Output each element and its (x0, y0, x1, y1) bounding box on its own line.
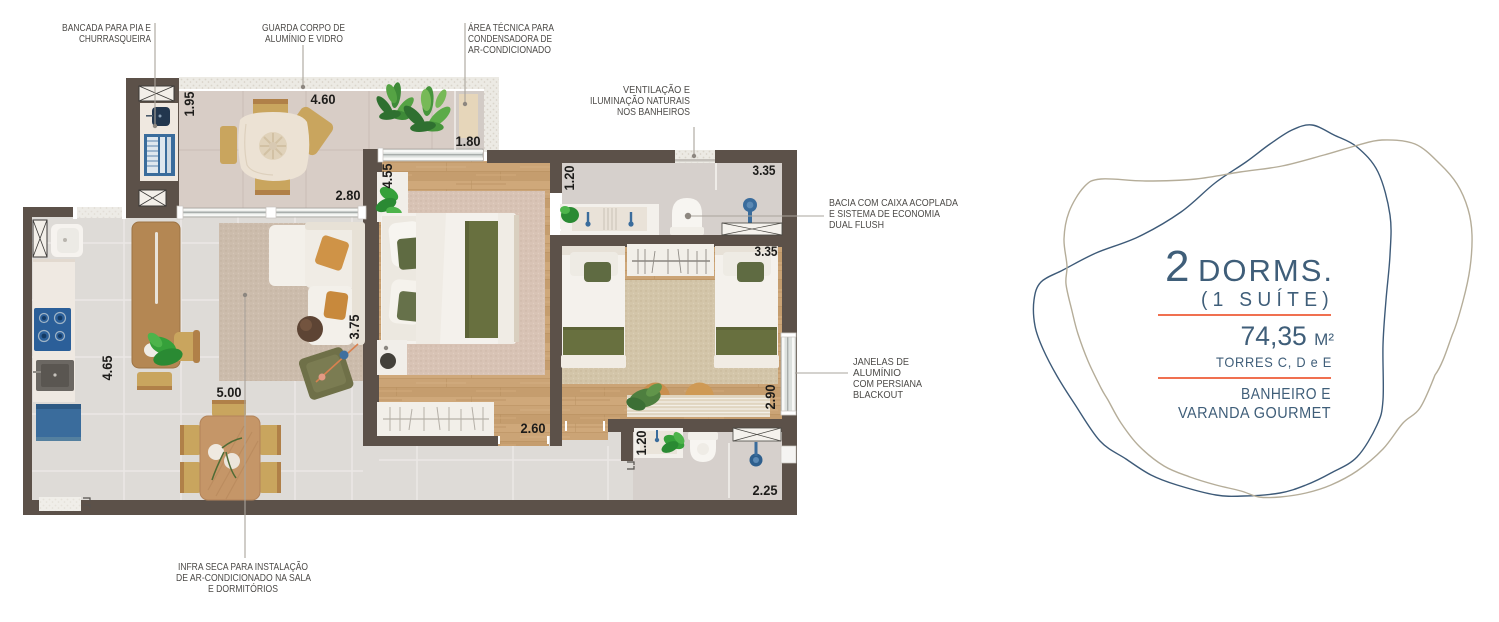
svg-text:BACIA COM CAIXA ACOPLADA: BACIA COM CAIXA ACOPLADA (829, 198, 958, 209)
svg-text:2.25: 2.25 (753, 482, 778, 498)
svg-text:VARANDA GOURMET: VARANDA GOURMET (1178, 405, 1331, 422)
svg-text:DUAL FLUSH: DUAL FLUSH (829, 220, 884, 231)
svg-text:3.35: 3.35 (753, 162, 776, 178)
svg-text:ALUMÍNIO: ALUMÍNIO (853, 366, 901, 379)
svg-text:3.35: 3.35 (755, 243, 778, 259)
svg-text:BANCADA PARA PIA E: BANCADA PARA PIA E (62, 23, 151, 34)
svg-text:5.00: 5.00 (217, 384, 242, 400)
svg-text:(1 SUÍTE): (1 SUÍTE) (1201, 288, 1334, 311)
svg-text:2.80: 2.80 (336, 187, 361, 203)
svg-text:4.60: 4.60 (311, 91, 336, 107)
svg-text:DORMS.: DORMS. (1198, 253, 1334, 288)
svg-text:VENTILAÇÃO E: VENTILAÇÃO E (623, 83, 690, 96)
svg-text:ILUMINAÇÃO NATURAIS: ILUMINAÇÃO NATURAIS (590, 94, 690, 107)
svg-text:E DORMITÓRIOS: E DORMITÓRIOS (208, 582, 278, 595)
svg-text:3.75: 3.75 (346, 314, 362, 339)
svg-text:TORRES C, D e E: TORRES C, D e E (1216, 354, 1332, 370)
svg-text:1.20: 1.20 (561, 165, 577, 190)
svg-text:2: 2 (1165, 242, 1189, 291)
svg-text:1.20: 1.20 (633, 430, 649, 455)
svg-text:4.65: 4.65 (99, 355, 115, 380)
svg-text:2.60: 2.60 (521, 420, 546, 436)
svg-text:BANHEIRO E: BANHEIRO E (1241, 386, 1331, 403)
svg-text:74,35 M²: 74,35 M² (1240, 321, 1334, 351)
svg-text:INFRA SECA PARA INSTALAÇÃO: INFRA SECA PARA INSTALAÇÃO (178, 560, 308, 573)
svg-text:ALUMÍNIO E VIDRO: ALUMÍNIO E VIDRO (265, 32, 343, 45)
svg-text:AR-CONDICIONADO: AR-CONDICIONADO (468, 45, 551, 56)
svg-text:GUARDA CORPO DE: GUARDA CORPO DE (262, 23, 345, 34)
svg-text:JANELAS DE: JANELAS DE (853, 357, 909, 368)
svg-text:1.95: 1.95 (181, 91, 197, 116)
svg-text:2.90: 2.90 (762, 384, 778, 409)
svg-text:BLACKOUT: BLACKOUT (853, 390, 903, 401)
svg-text:ÁREA TÉCNICA PARA: ÁREA TÉCNICA PARA (468, 21, 554, 34)
svg-text:4.55: 4.55 (379, 163, 395, 188)
svg-text:CONDENSADORA DE: CONDENSADORA DE (468, 34, 552, 45)
svg-text:E SISTEMA DE ECONOMIA: E SISTEMA DE ECONOMIA (829, 209, 940, 220)
svg-text:COM PERSIANA: COM PERSIANA (853, 379, 922, 390)
svg-text:NOS BANHEIROS: NOS BANHEIROS (617, 107, 690, 118)
svg-text:CHURRASQUEIRA: CHURRASQUEIRA (79, 34, 151, 45)
svg-text:1.80: 1.80 (456, 133, 481, 149)
svg-text:DE AR-CONDICIONADO NA SALA: DE AR-CONDICIONADO NA SALA (176, 573, 311, 584)
